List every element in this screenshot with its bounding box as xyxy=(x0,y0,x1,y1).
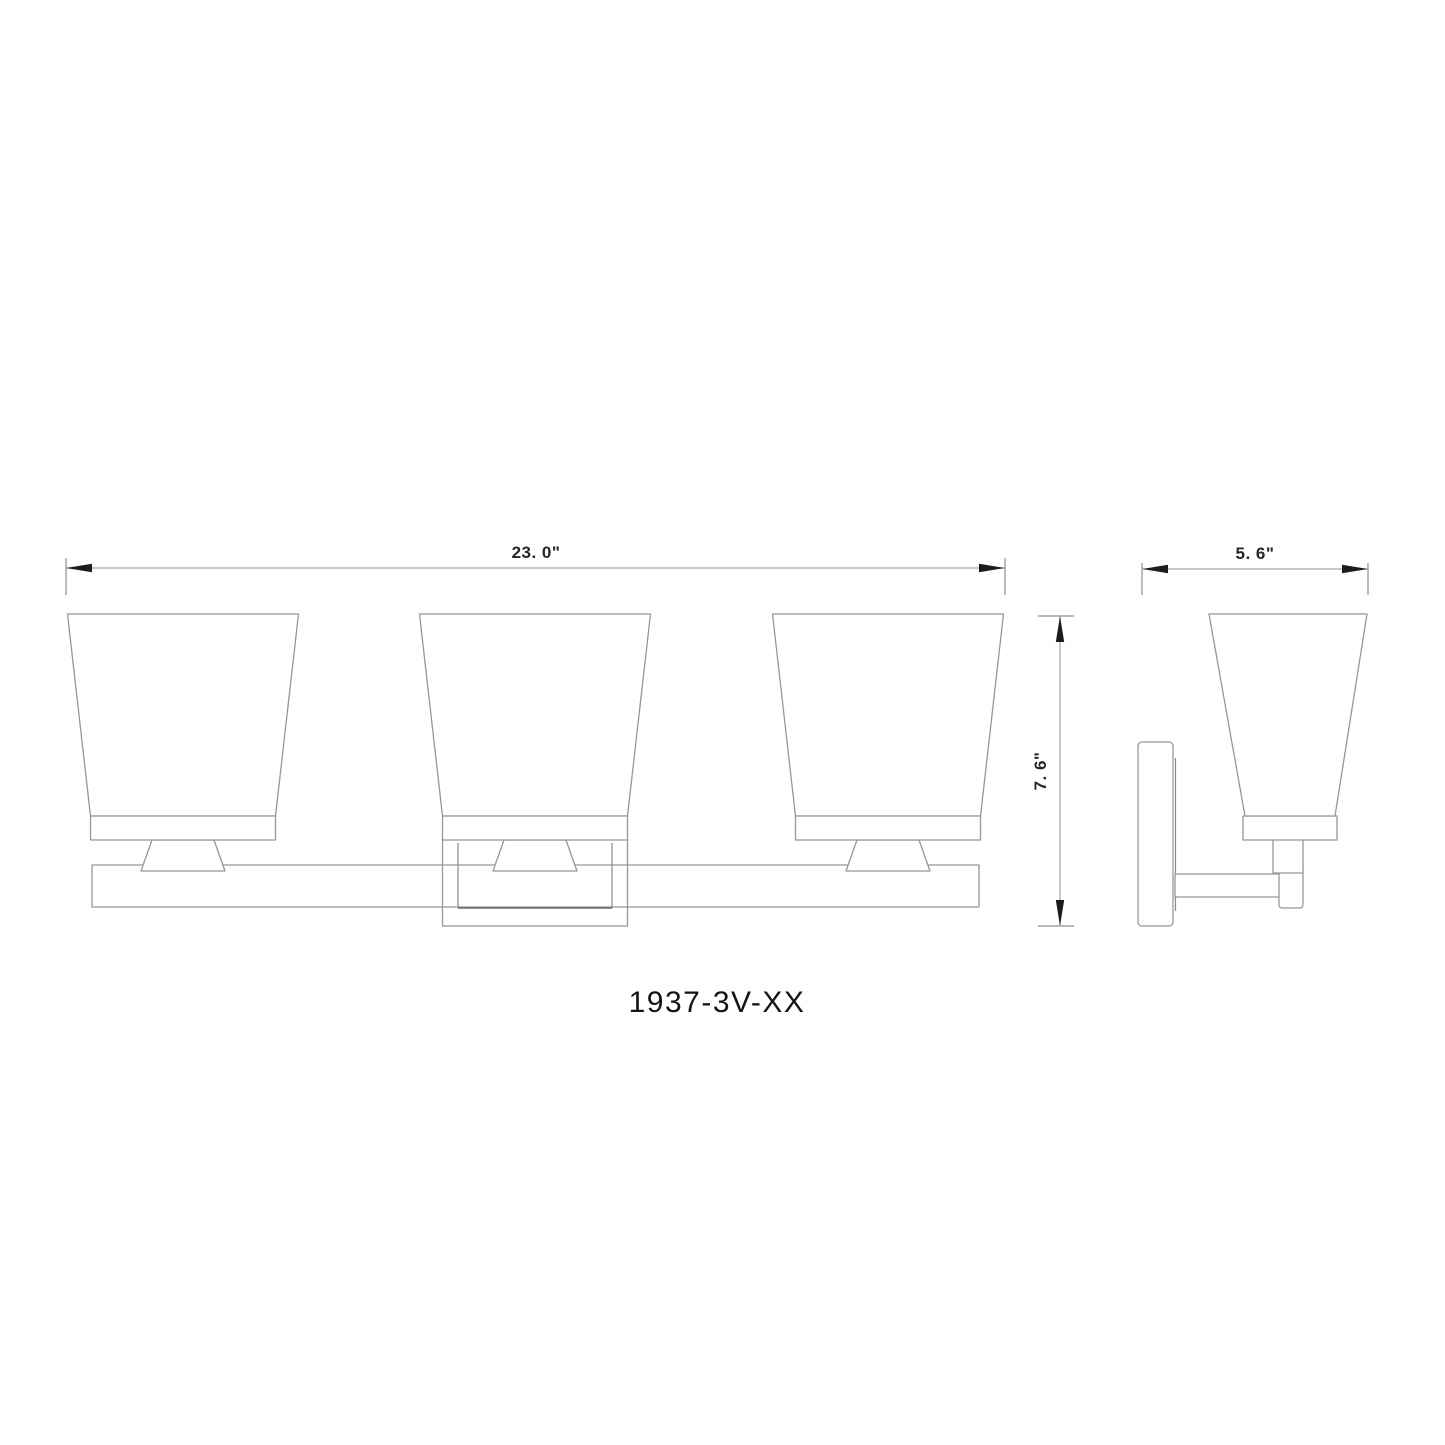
arrow-up-icon xyxy=(1056,616,1064,642)
front-stem-center xyxy=(493,840,577,871)
vanity-light-dimension-drawing: 23. 0" 5. 6" 7. 6" 1937-3V-XX xyxy=(0,0,1445,1445)
side-rim xyxy=(1243,816,1337,840)
dimension-front-width: 23. 0" xyxy=(66,543,1005,595)
front-rim-left xyxy=(91,816,276,840)
front-shade-center xyxy=(420,614,651,816)
technical-drawing-page: 23. 0" 5. 6" 7. 6" 1937-3V-XX xyxy=(0,0,1445,1445)
dimension-side-depth: 5. 6" xyxy=(1142,544,1368,595)
front-height-label: 7. 6" xyxy=(1031,752,1050,791)
dimension-front-height: 7. 6" xyxy=(1031,616,1074,926)
front-rim-right xyxy=(796,816,981,840)
front-width-label: 23. 0" xyxy=(512,543,561,562)
side-depth-label: 5. 6" xyxy=(1236,544,1275,563)
arrow-down-icon xyxy=(1056,900,1064,926)
front-shade-right xyxy=(773,614,1004,816)
front-view xyxy=(68,614,1004,926)
side-wall-plate xyxy=(1138,742,1173,926)
front-stem-left xyxy=(141,840,225,871)
arrow-left-icon xyxy=(1142,565,1168,573)
side-view xyxy=(1138,614,1367,926)
arrow-left-icon xyxy=(66,564,92,572)
front-rim-center xyxy=(443,816,628,840)
side-stem xyxy=(1273,839,1303,873)
arrow-right-icon xyxy=(1342,565,1368,573)
front-stem-right xyxy=(846,840,930,871)
side-shade xyxy=(1209,614,1367,816)
arrow-right-icon xyxy=(979,564,1005,572)
side-arm xyxy=(1175,874,1280,897)
front-shade-left xyxy=(68,614,299,816)
model-number-label: 1937-3V-XX xyxy=(629,986,806,1019)
